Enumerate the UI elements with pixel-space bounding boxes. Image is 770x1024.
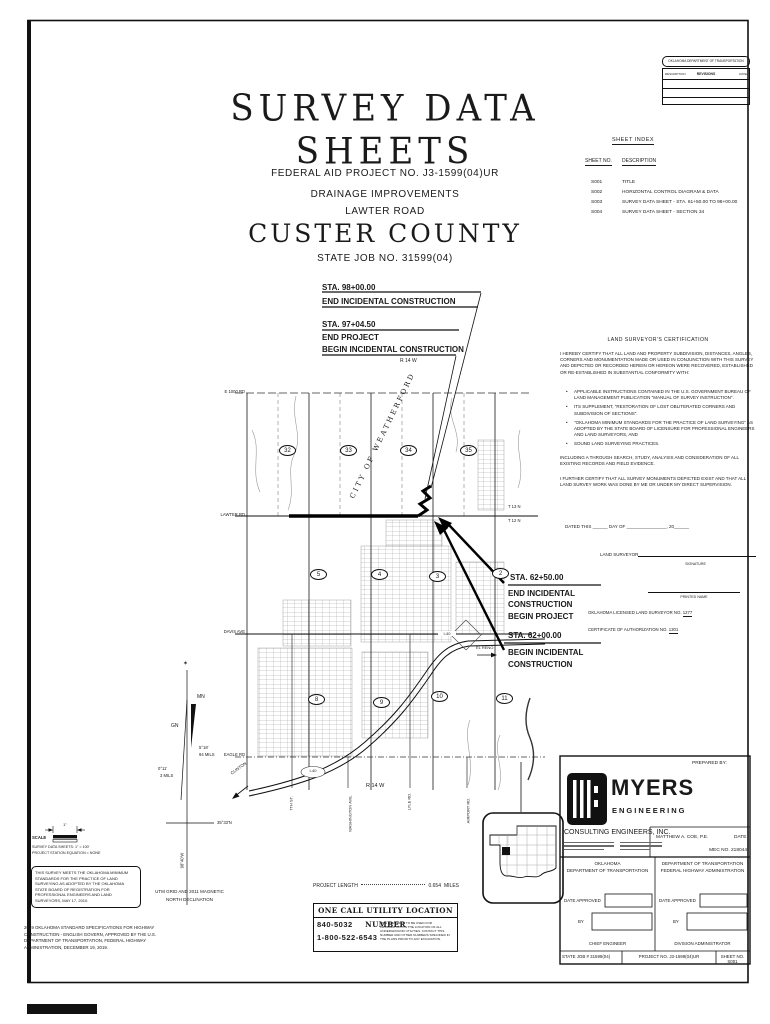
section-8: 8	[308, 694, 325, 705]
callout-c4-line1: BEGIN INCIDENTAL	[508, 648, 583, 657]
firm-company-line: CONSULTING ENGINEERS, INC.	[564, 829, 670, 836]
license-label: OKLAHOMA LICENSED LAND SURVEYOR NO.	[588, 610, 682, 615]
street-label-lyle: LYLE RD.	[407, 782, 412, 822]
page-title: SURVEY DATA SHEETS	[180, 87, 590, 173]
standards-note-text: THIS SURVEY MEETS THE OKLAHOMA MINIMUM S…	[35, 870, 137, 904]
sheet-index-row: S003	[591, 200, 602, 205]
longitude-label: 98°40'W	[180, 843, 185, 879]
one-call-title: ONE CALL UTILITY LOCATION NUMBER	[314, 904, 457, 918]
revision-row	[663, 88, 749, 97]
latitude-label: 35°33'N	[217, 820, 232, 825]
revision-row	[663, 79, 749, 88]
sheet-index-col-desc: DESCRIPTION	[622, 158, 656, 166]
one-call-box: ONE CALL UTILITY LOCATION NUMBER 840-503…	[313, 903, 458, 952]
declination-angle-2: 0°11'	[158, 766, 167, 771]
bullet-dot: •	[566, 441, 574, 447]
sheet-index-row: HORIZONTAL CONTROL DIAGRAM & DATA	[622, 190, 719, 195]
street-label-washington: WASHINGTON AVE.	[348, 784, 353, 844]
signature-blank	[638, 552, 756, 557]
prepared-by-label: PREPARED BY:	[692, 761, 727, 766]
address-line	[564, 845, 614, 846]
project-length-row: PROJECT LENGTH 0.654 MILES	[313, 883, 459, 889]
spec-note-text: 2019 OKLAHOMA STANDARD SPECIFICATIONS FO…	[24, 925, 179, 951]
el-reno-label: EL RENO	[476, 645, 493, 650]
engineer-name: MATTHEW A. COE, P.E.	[656, 835, 708, 840]
section-3: 3	[429, 571, 446, 582]
license-line: OKLAHOMA LICENSED LAND SURVEYOR NO. 1277	[588, 610, 692, 615]
approval-left-by-label: BY	[578, 919, 584, 924]
i40-label-west: I-40	[303, 768, 323, 773]
firm-address-block-left	[564, 842, 614, 852]
sheet-index-row: S002	[591, 190, 602, 195]
callout-sta-6250: STA. 62+50.00	[510, 573, 563, 582]
standards-note-box: THIS SURVEY MEETS THE OKLAHOMA MINIMUM S…	[31, 866, 141, 908]
street-label-airport: AIRPORT RD.	[466, 786, 471, 836]
firm-address-block-right	[620, 842, 662, 852]
certification-para3: I FURTHER CERTIFY THAT ALL SURVEY MONUME…	[560, 476, 756, 488]
footer-sheet-no: SHEET NO. S001	[716, 954, 749, 964]
bullet-dot: •	[566, 404, 574, 416]
printed-name-blank	[648, 592, 740, 593]
cert-bullet-4: SOUND LAND SURVEYING PRACTICES.	[574, 441, 756, 447]
section-35: 35	[460, 445, 477, 456]
declination-mils-2: 3 MILS	[160, 773, 173, 778]
revision-col-date: DATE	[720, 72, 749, 76]
road-name: LAWTER ROAD	[235, 206, 535, 217]
cert-auth-line: CERTIFICATE OF AUTHORIZATION NO. 1301	[588, 627, 678, 632]
one-call-phone-local: 840-5032	[317, 920, 378, 929]
improvement-type: DRAINAGE IMPROVEMENTS	[235, 189, 535, 200]
section-5: 5	[310, 569, 327, 580]
approval-left-agency-1: OKLAHOMA	[560, 861, 655, 866]
section-4: 4	[371, 569, 388, 580]
callout-begin-incidental: BEGIN INCIDENTAL CONSTRUCTION	[322, 345, 464, 354]
footer-project-no: PROJECT NO. J3-1599(04)UR	[622, 954, 716, 959]
callout-sta-97: STA. 97+04.50	[322, 320, 375, 329]
land-surveyor-signature-row: LAND SURVEYOR	[600, 552, 756, 557]
approval-right-date-label: DATE APPROVED	[659, 898, 696, 903]
grid-north-label: GN	[171, 723, 179, 729]
sheet-index-row: SURVEY DATA SHEET - STA. 61+50.00 TO 98+…	[622, 200, 737, 205]
land-surveyor-label: LAND SURVEYOR	[600, 552, 638, 557]
project-length-label: PROJECT LENGTH	[313, 883, 358, 889]
road-label-eagle: EAGLE RD	[210, 752, 245, 757]
footer-state-job: STATE JOB # 31599(04)	[562, 954, 610, 959]
license-number: 1277	[683, 610, 693, 617]
county-name: CUSTER COUNTY	[235, 219, 535, 248]
revision-row	[663, 97, 749, 106]
certification-heading: LAND SURVEYOR'S CERTIFICATION	[560, 337, 756, 343]
scale-inch-label: 1"	[55, 822, 75, 827]
bullet-dot: •	[566, 420, 574, 439]
road-label-davis: DAVIS AVE	[210, 629, 245, 634]
approval-right-role: DIVISION ADMINISTRATOR	[655, 941, 750, 946]
scale-label: SCALE	[32, 835, 46, 840]
project-length-unit: MILES	[444, 883, 459, 889]
declination-mils-1: 94 MILS	[199, 752, 215, 757]
section-32: 32	[279, 445, 296, 456]
one-call-phone-tollfree: 1-800-522-6543	[317, 933, 378, 942]
firm-sub-name: ENGINEERING	[612, 806, 687, 815]
approval-left-role: CHIEF ENGINEER	[560, 941, 655, 946]
range-label-top: R 14 W	[400, 358, 417, 364]
cert-auth-label: CERTIFICATE OF AUTHORIZATION NO.	[588, 627, 668, 632]
bullet-dot: •	[566, 389, 574, 401]
township-12n: T 12 N	[508, 518, 521, 523]
sheet-index-row: TITLE	[622, 180, 635, 185]
callout-sta-6200: STA. 62+00.00	[508, 631, 561, 640]
approval-right-by-label: BY	[673, 919, 679, 924]
scale-note-2: PROJECT STATION EQUATION = NONE	[32, 851, 100, 855]
township-13n: T 13 N	[508, 504, 521, 509]
project-length-value: 0.654	[428, 883, 441, 889]
state-job-number: STATE JOB NO. 31599(04)	[235, 253, 535, 264]
project-length-leader	[361, 884, 426, 885]
odot-revision-agency: OKLAHOMA DEPARTMENT OF TRANSPORTATION	[662, 56, 750, 67]
declination-angle-1: 5°18'	[199, 745, 208, 750]
approval-right-agency-1: DEPARTMENT OF TRANSPORTATION	[655, 861, 750, 866]
sheet-index-title: SHEET INDEX	[612, 137, 654, 145]
address-line	[620, 842, 662, 843]
road-label-lawter: LAWTER RD	[210, 512, 245, 517]
road-label-e1000: E 1000 RD	[210, 389, 245, 394]
revision-col-revisions: REVISIONS	[692, 72, 719, 76]
address-line	[564, 849, 604, 850]
street-label-7th: 7TH ST.	[289, 784, 294, 824]
declination-caption-2: NORTH DECLINATION	[147, 897, 232, 902]
dated-line: DATED THIS ______ DAY OF _______________…	[565, 524, 689, 529]
printed-name-caption: PRINTED NAME	[648, 595, 740, 599]
cert-bullet-1: APPLICABLE INSTRUCTIONS CONTAINED IN THE…	[574, 389, 756, 401]
sheet-index-row: S001	[591, 180, 602, 185]
address-line	[564, 842, 614, 843]
callout-c3-line2: CONSTRUCTION	[508, 600, 572, 609]
callout-sta-98: STA. 98+00.00	[322, 283, 375, 292]
revision-col-description: DESCRIPTION	[663, 72, 692, 76]
callout-c3-line1: END INCIDENTAL	[508, 589, 575, 598]
approval-left-date-label: DATE APPROVED	[564, 898, 601, 903]
address-line	[620, 845, 662, 846]
approval-right-agency-2: FEDERAL HIGHWAY ADMINISTRATION	[655, 868, 750, 873]
callout-end-incidental: END INCIDENTAL CONSTRUCTION	[322, 297, 455, 306]
signature-caption: SIGNATURE	[648, 562, 743, 566]
federal-aid-project: FEDERAL AID PROJECT NO. J3-1599(04)UR	[235, 168, 535, 179]
cert-bullet-2: ITS SUPPLEMENT, "RESTORATION OF LOST OBL…	[574, 404, 756, 416]
callout-c3-line3: BEGIN PROJECT	[508, 612, 573, 621]
section-11: 11	[496, 693, 513, 704]
callout-c4-line2: CONSTRUCTION	[508, 660, 572, 669]
declination-caption-1: UTM GRID AND 2011 MAGNETIC	[147, 889, 232, 894]
engineer-date-label: DATE	[734, 835, 746, 840]
survey-title-sheet: OKLAHOMA DEPARTMENT OF TRANSPORTATION DE…	[0, 0, 770, 1024]
section-34: 34	[400, 445, 417, 456]
revision-table: DESCRIPTION REVISIONS DATE	[662, 68, 750, 105]
certification-bullets: •APPLICABLE INSTRUCTIONS CONTAINED IN TH…	[566, 389, 756, 451]
section-10: 10	[431, 691, 448, 702]
sheet-index-row: S004	[591, 210, 602, 215]
approval-left-agency-2: DEPARTMENT OF TRANSPORTATION	[560, 868, 655, 873]
callout-end-project: END PROJECT	[322, 333, 379, 342]
certification-para1: I HEREBY CERTIFY THAT ALL LAND AND PROPE…	[560, 351, 756, 376]
certification-para2: INCLUDING A THROUGH SEARCH, STUDY, ANALY…	[560, 455, 756, 467]
north-star-icon: ✶	[183, 660, 188, 667]
scale-note-1: SURVEY DATA SHEETS: 1" = 100'	[32, 845, 89, 849]
firm-name: MYERS	[611, 775, 694, 801]
cert-bullet-3: "OKLAHOMA MINIMUM STANDARDS FOR THE PRAC…	[574, 420, 756, 439]
magnetic-north-label: MN	[197, 694, 205, 700]
section-2: 2	[492, 568, 509, 579]
range-label-bottom: R 14 W	[366, 783, 384, 789]
address-line	[620, 849, 650, 850]
sheet-index-col-no: SHEET NO.	[585, 158, 612, 166]
cert-auth-number: 1301	[669, 627, 679, 634]
sheet-index-row: SURVEY DATA SHEET - SECTION 34	[622, 210, 704, 215]
i40-label-east: I-40	[438, 631, 456, 636]
firm-misc-number: MEC NO. 218044	[680, 848, 747, 853]
one-call-note: THIS NUMBER IS TO BE USED FOR INFORMATIO…	[378, 918, 457, 942]
section-33: 33	[340, 445, 357, 456]
section-9: 9	[373, 697, 390, 708]
